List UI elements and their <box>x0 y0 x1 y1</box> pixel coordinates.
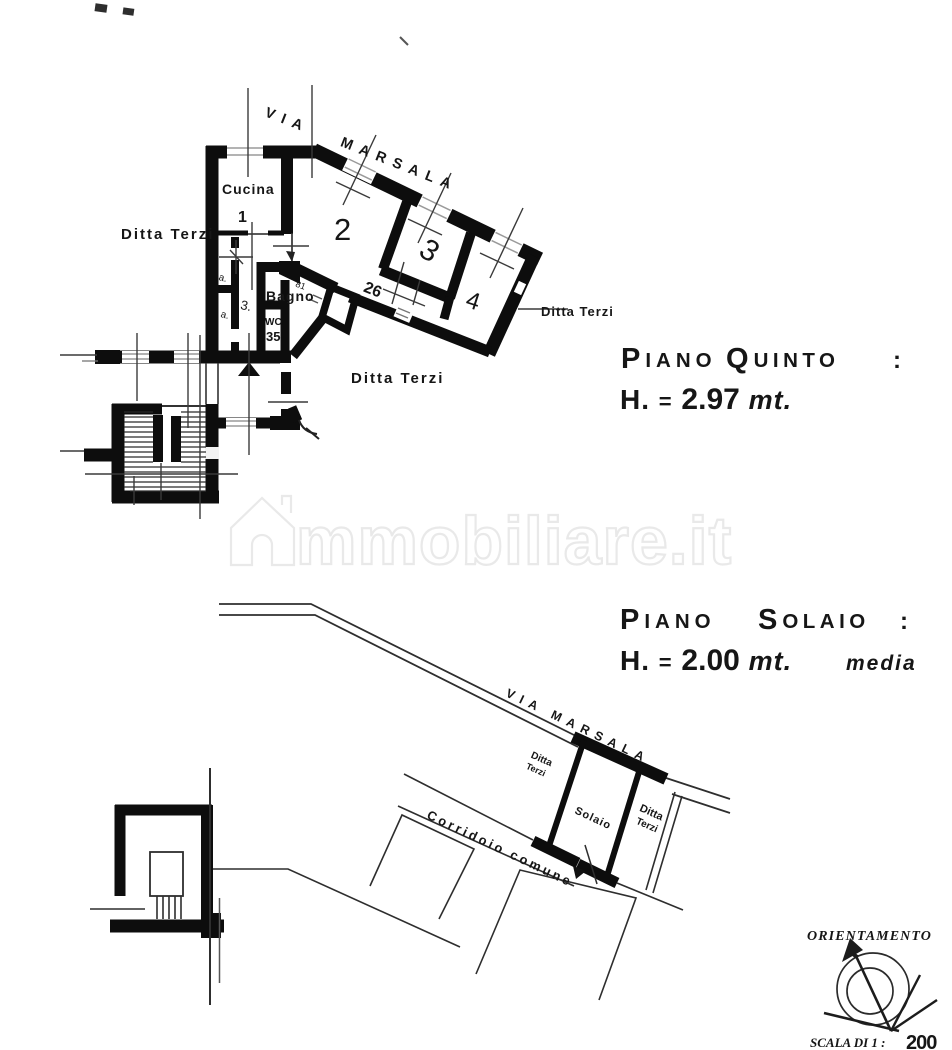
svg-text:WC: WC <box>265 317 282 328</box>
svg-text:Bagno: Bagno <box>266 288 315 304</box>
svg-text:mmobiliare.it: mmobiliare.it <box>296 503 732 579</box>
svg-text:2: 2 <box>334 212 351 247</box>
svg-text:H. = 2.97 mt.: H. = 2.97 mt. <box>620 383 792 416</box>
svg-text:Cucina: Cucina <box>222 181 275 197</box>
svg-text:35: 35 <box>266 329 280 344</box>
svg-text:200: 200 <box>906 1032 937 1050</box>
svg-text:Ditta Terzi: Ditta Terzi <box>541 304 614 319</box>
svg-text:Ditta Terzi: Ditta Terzi <box>121 226 214 243</box>
svg-text:SCALA DI 1 :: SCALA DI 1 : <box>810 1035 886 1050</box>
svg-text:Ditta Terzi: Ditta Terzi <box>351 370 444 387</box>
svg-text:ORIENTAMENTO: ORIENTAMENTO <box>807 929 932 944</box>
svg-text:1: 1 <box>238 209 247 226</box>
